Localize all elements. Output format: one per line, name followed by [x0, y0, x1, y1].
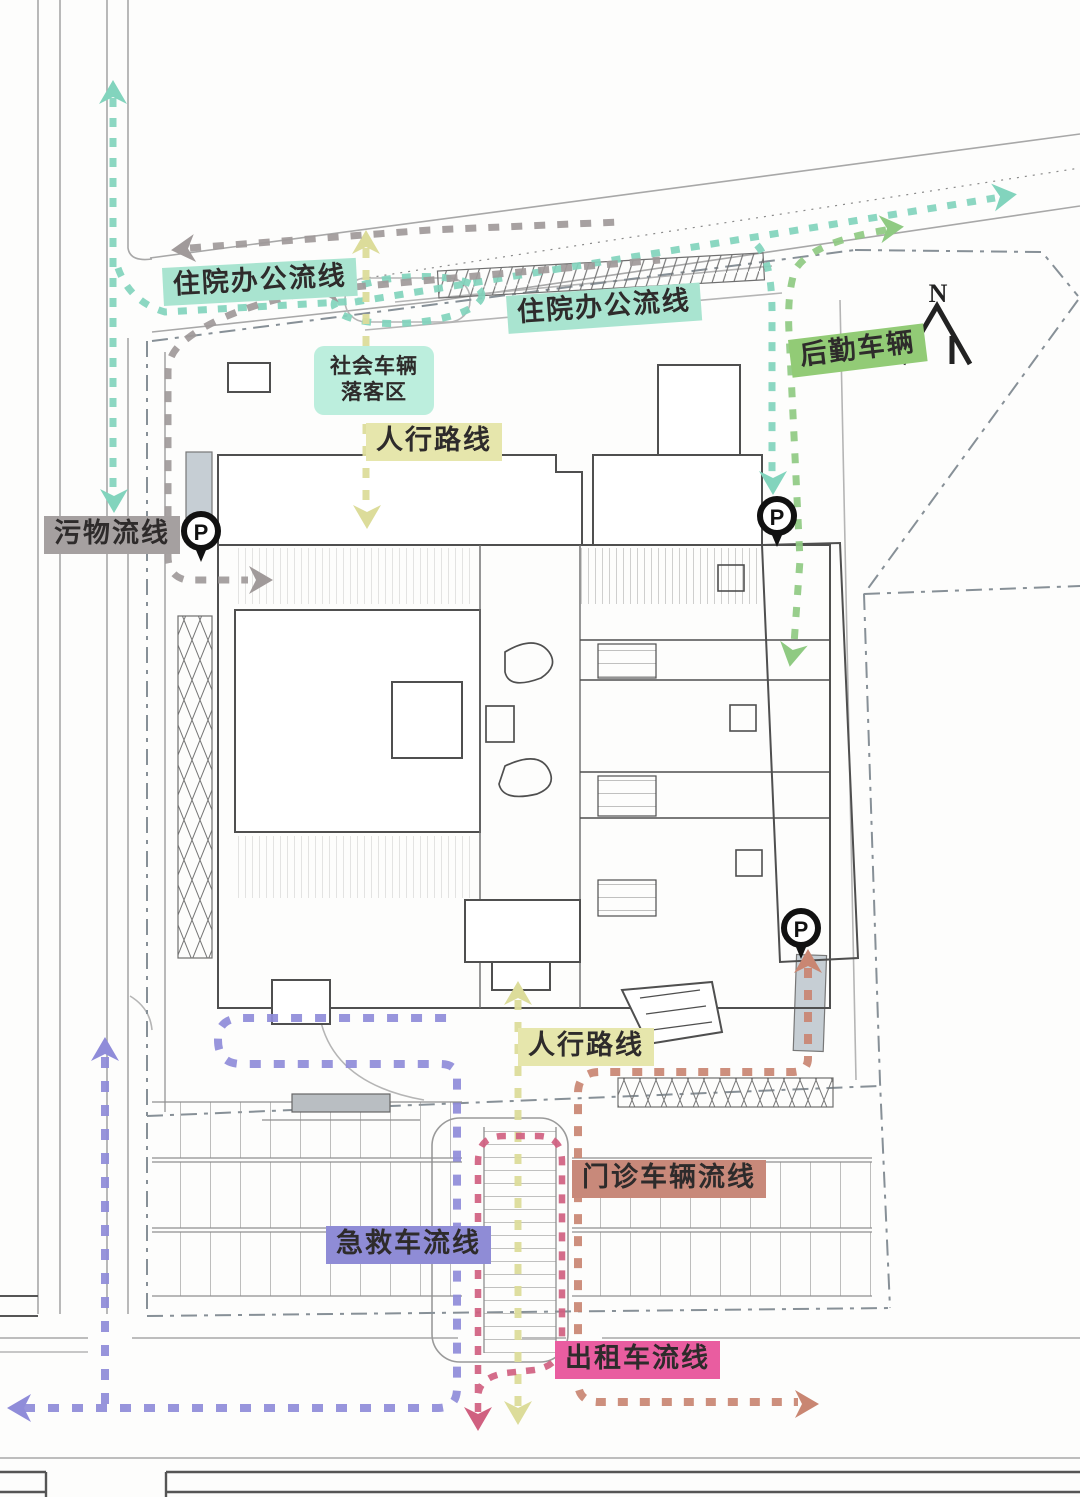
parking-letter: P: [770, 505, 785, 530]
parking-pin-2: P: [760, 499, 794, 547]
site-plan-svg: P P P N: [0, 0, 1080, 1497]
dropoff-line2: 落客区: [341, 381, 407, 404]
hospital-buildings: [186, 363, 858, 1051]
parking-letter: P: [194, 520, 209, 545]
label-waste-flow: 污物流线: [44, 516, 180, 554]
label-outpatient-vehicle-flow: 门诊车辆流线: [572, 1160, 766, 1198]
label-taxi-flow: 出租车流线: [555, 1341, 720, 1379]
label-social-vehicle-dropoff: 社会车辆 落客区: [314, 346, 434, 415]
label-pedestrian-route-top: 人行路线: [366, 423, 502, 461]
site-plan-stage: P P P N 住院办公流线 住院办公流线 社会车辆 落客区 人行路线 后勤车辆…: [0, 0, 1080, 1497]
label-ambulance-flow: 急救车流线: [326, 1226, 491, 1264]
green-logistics-flow: [789, 230, 886, 644]
parking-pin-3: P: [784, 911, 818, 959]
dropoff-line1: 社会车辆: [330, 355, 418, 378]
parking-pin-1: P: [184, 514, 218, 562]
label-pedestrian-route-bottom: 人行路线: [518, 1028, 654, 1066]
parking-letter: P: [794, 917, 809, 942]
